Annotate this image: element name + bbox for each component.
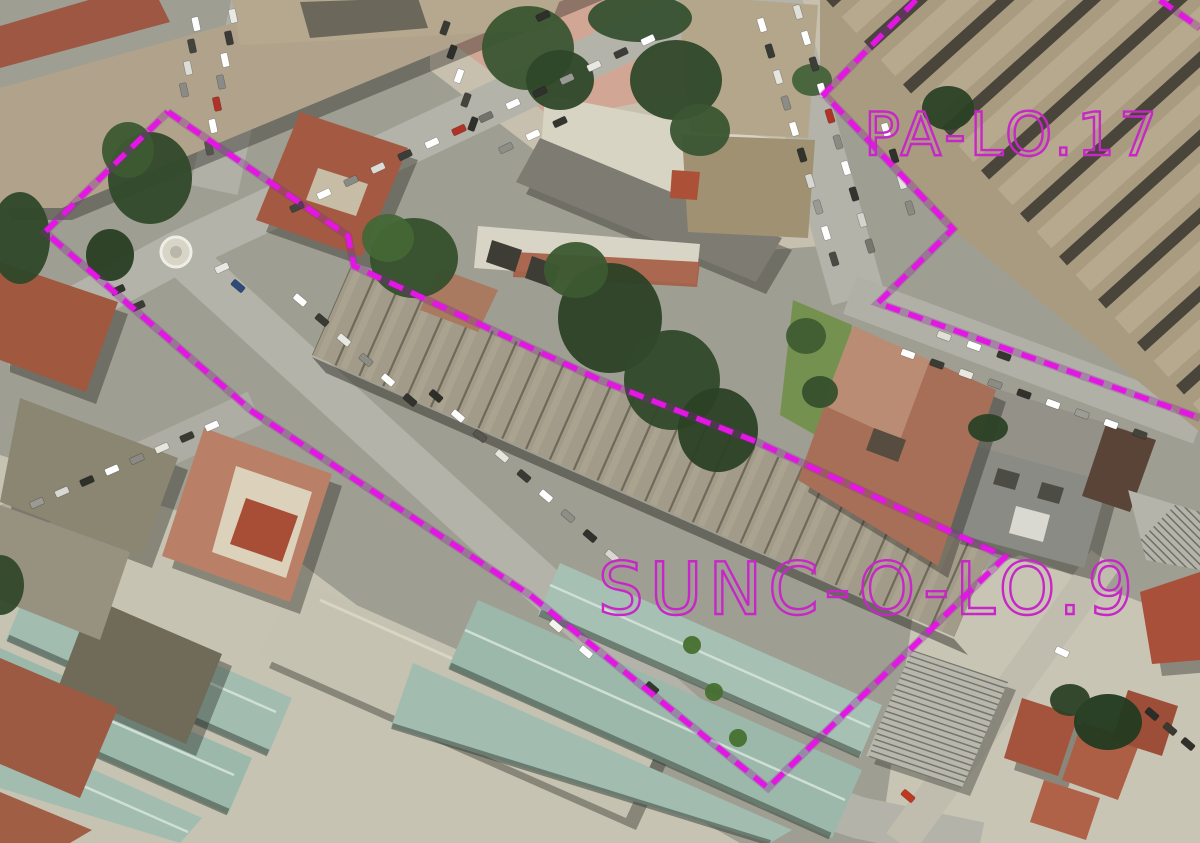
zone-label-sunc-o-lo-9: SUNC-O-LO.9 bbox=[598, 547, 1139, 631]
tree bbox=[802, 376, 838, 408]
roundabout-center bbox=[170, 246, 182, 258]
street-planter bbox=[683, 636, 701, 654]
tree bbox=[1050, 684, 1090, 716]
tree bbox=[544, 242, 608, 298]
tree bbox=[362, 214, 414, 262]
street-planter bbox=[729, 729, 747, 747]
tree bbox=[670, 104, 730, 156]
roundabout bbox=[161, 237, 191, 267]
zone-label-pa-lo-17: PA-LO.17 bbox=[864, 100, 1161, 170]
aerial-map-canvas[interactable]: PA-LO.17SUNC-O-LO.9 bbox=[0, 0, 1200, 843]
street-planter bbox=[705, 683, 723, 701]
aerial-photo-layer: PA-LO.17SUNC-O-LO.9 bbox=[0, 0, 1200, 843]
school-red-chimney bbox=[670, 170, 700, 200]
tree bbox=[968, 414, 1008, 442]
tree bbox=[786, 318, 826, 354]
